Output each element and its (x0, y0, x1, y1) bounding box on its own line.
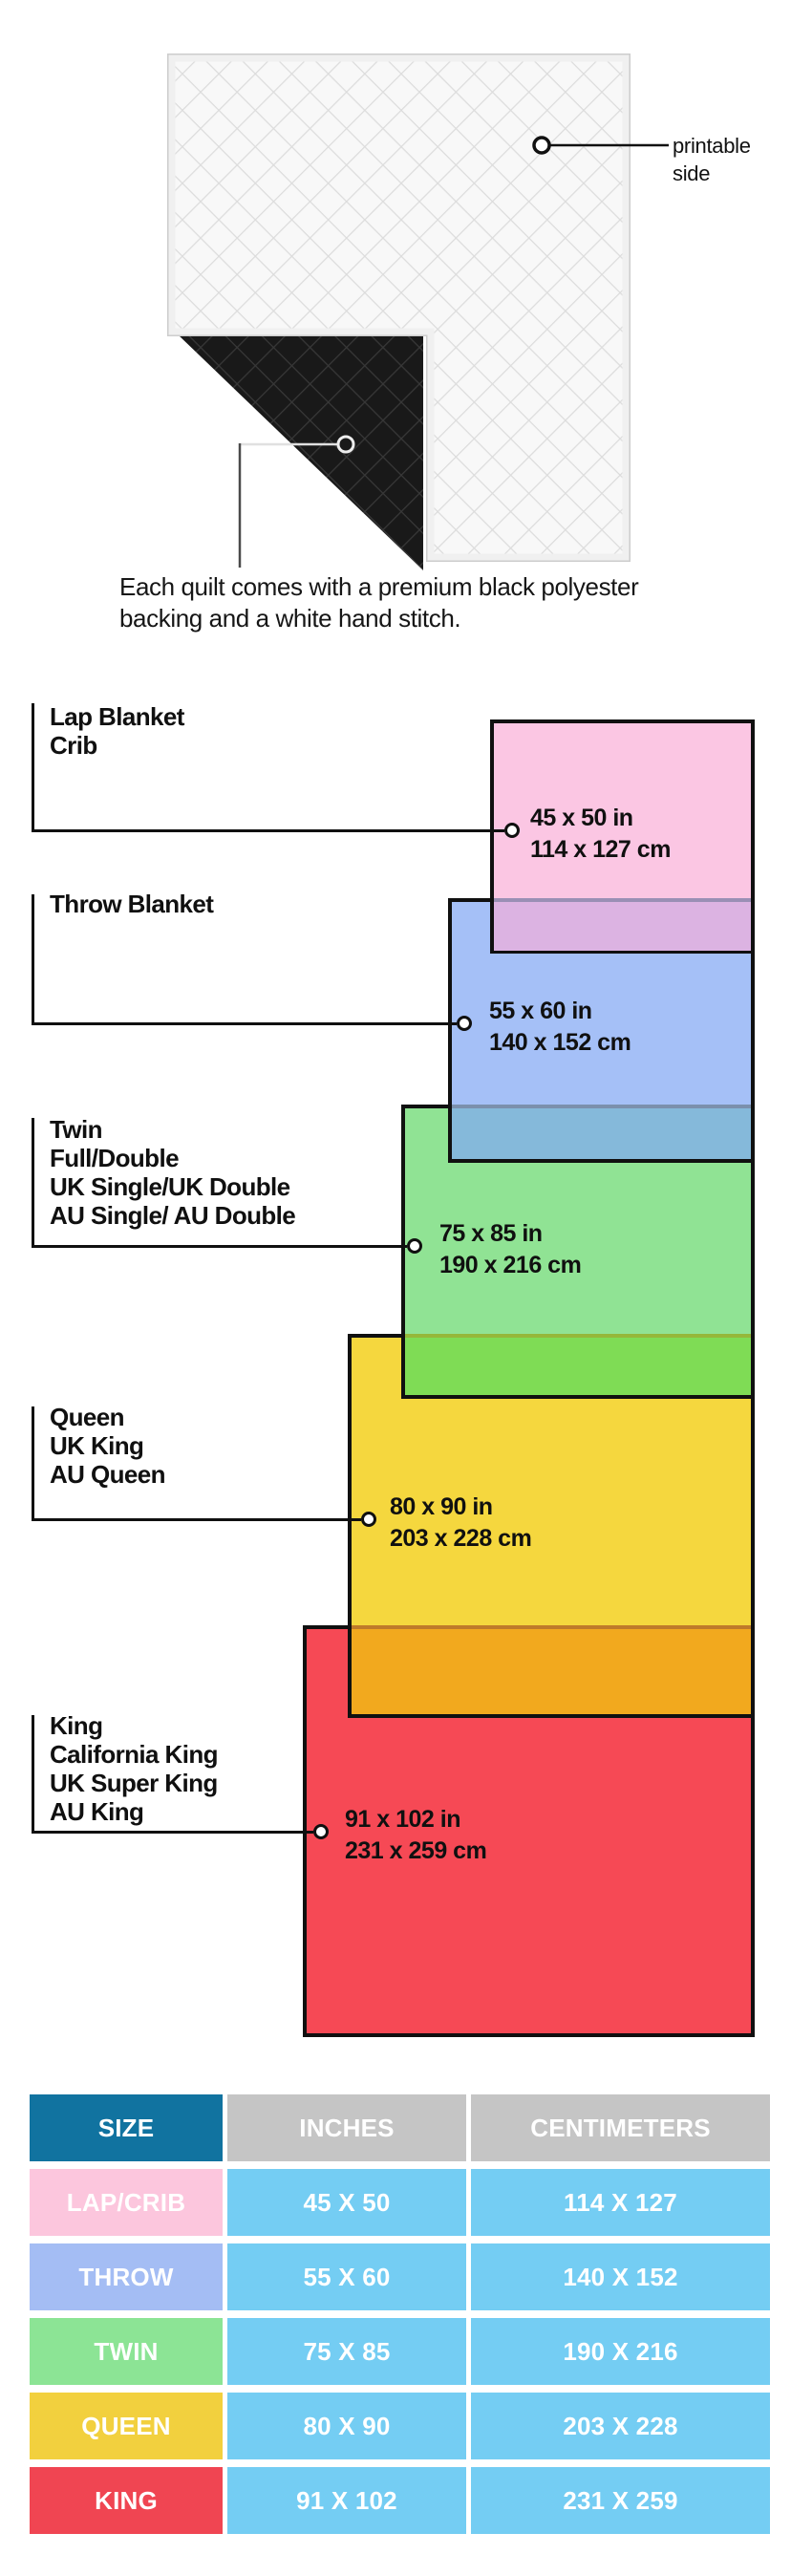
overlap-twin-queen (405, 1334, 751, 1395)
tick-queen (32, 1406, 34, 1519)
table-header-size: SIZE (30, 2094, 223, 2161)
label-lap-crib: Lap Blanket Crib (50, 702, 184, 760)
quilt-size-chart: printable side Each quilt comes with a p… (0, 0, 791, 2576)
table-row-twin-cm: 190 X 216 (471, 2318, 770, 2385)
tick-twin (32, 1118, 34, 1246)
tick-king (32, 1715, 34, 1832)
label-throw: Throw Blanket (50, 890, 213, 918)
printable-side-label: printable side (673, 132, 751, 187)
table-row-queen-cm: 203 X 228 (471, 2393, 770, 2459)
overlap-lap-throw (494, 898, 751, 951)
tick-throw (32, 894, 34, 1023)
dims-throw: 55 x 60 in 140 x 152 cm (489, 996, 631, 1059)
tick-lap-crib (32, 703, 34, 830)
printable-side-marker-dot (534, 138, 549, 153)
table-row-king-cm: 231 X 259 (471, 2467, 770, 2534)
leader-king (32, 1831, 313, 1834)
marker-dot-lap-crib (504, 823, 520, 838)
label-twin: Twin Full/Double UK Single/UK Double AU … (50, 1115, 295, 1230)
quilt-caption: Each quilt comes with a premium black po… (119, 571, 638, 634)
table-row-queen-size: QUEEN (30, 2393, 223, 2459)
table-header-inches: INCHES (227, 2094, 466, 2161)
dims-lap-crib: 45 x 50 in 114 x 127 cm (530, 803, 671, 866)
table-row-lap-crib-cm: 114 X 127 (471, 2169, 770, 2236)
table-row-throw-inches: 55 X 60 (227, 2243, 466, 2310)
table-row-twin-inches: 75 X 85 (227, 2318, 466, 2385)
table-row-queen-inches: 80 X 90 (227, 2393, 466, 2459)
table-row-lap-crib-size: LAP/CRIB (30, 2169, 223, 2236)
marker-dot-throw (457, 1016, 472, 1031)
table-row-throw-size: THROW (30, 2243, 223, 2310)
table-row-lap-crib-inches: 45 X 50 (227, 2169, 466, 2236)
marker-dot-twin (407, 1238, 422, 1254)
size-table: SIZE INCHES CENTIMETERS LAP/CRIB 45 X 50… (30, 2094, 770, 2534)
leader-twin (32, 1245, 407, 1248)
dims-twin: 75 x 85 in 190 x 216 cm (439, 1218, 581, 1281)
marker-dot-king (313, 1824, 329, 1839)
label-king: King California King UK Super King AU Ki… (50, 1711, 218, 1826)
table-row-king-inches: 91 X 102 (227, 2467, 466, 2534)
leader-queen (32, 1518, 361, 1521)
quilt-illustration (0, 0, 791, 669)
table-row-king-size: KING (30, 2467, 223, 2534)
label-queen: Queen UK King AU Queen (50, 1403, 165, 1489)
leader-lap-crib (32, 829, 504, 832)
quilt-black-backing (178, 334, 423, 570)
leader-throw (32, 1022, 457, 1025)
overlap-throw-twin (452, 1105, 751, 1159)
overlap-queen-king (352, 1625, 751, 1714)
table-row-throw-cm: 140 X 152 (471, 2243, 770, 2310)
table-header-centimeters: CENTIMETERS (471, 2094, 770, 2161)
table-row-twin-size: TWIN (30, 2318, 223, 2385)
dims-queen: 80 x 90 in 203 x 228 cm (390, 1492, 531, 1555)
marker-dot-queen (361, 1512, 376, 1527)
dims-king: 91 x 102 in 231 x 259 cm (345, 1804, 486, 1867)
